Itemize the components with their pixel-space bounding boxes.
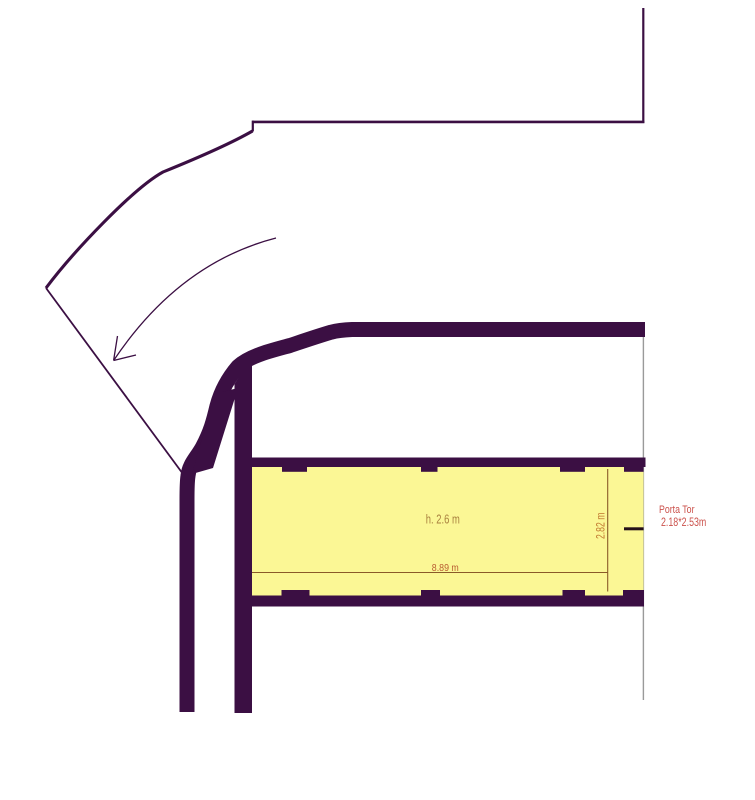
svg-text:8.89 m: 8.89 m — [432, 563, 459, 574]
svg-text:2.82 m: 2.82 m — [594, 513, 608, 540]
svg-text:Porta Tor: Porta Tor — [659, 504, 695, 516]
svg-text:2.18*2.53m: 2.18*2.53m — [661, 517, 706, 529]
svg-text:h. 2.6 m: h. 2.6 m — [426, 513, 460, 527]
